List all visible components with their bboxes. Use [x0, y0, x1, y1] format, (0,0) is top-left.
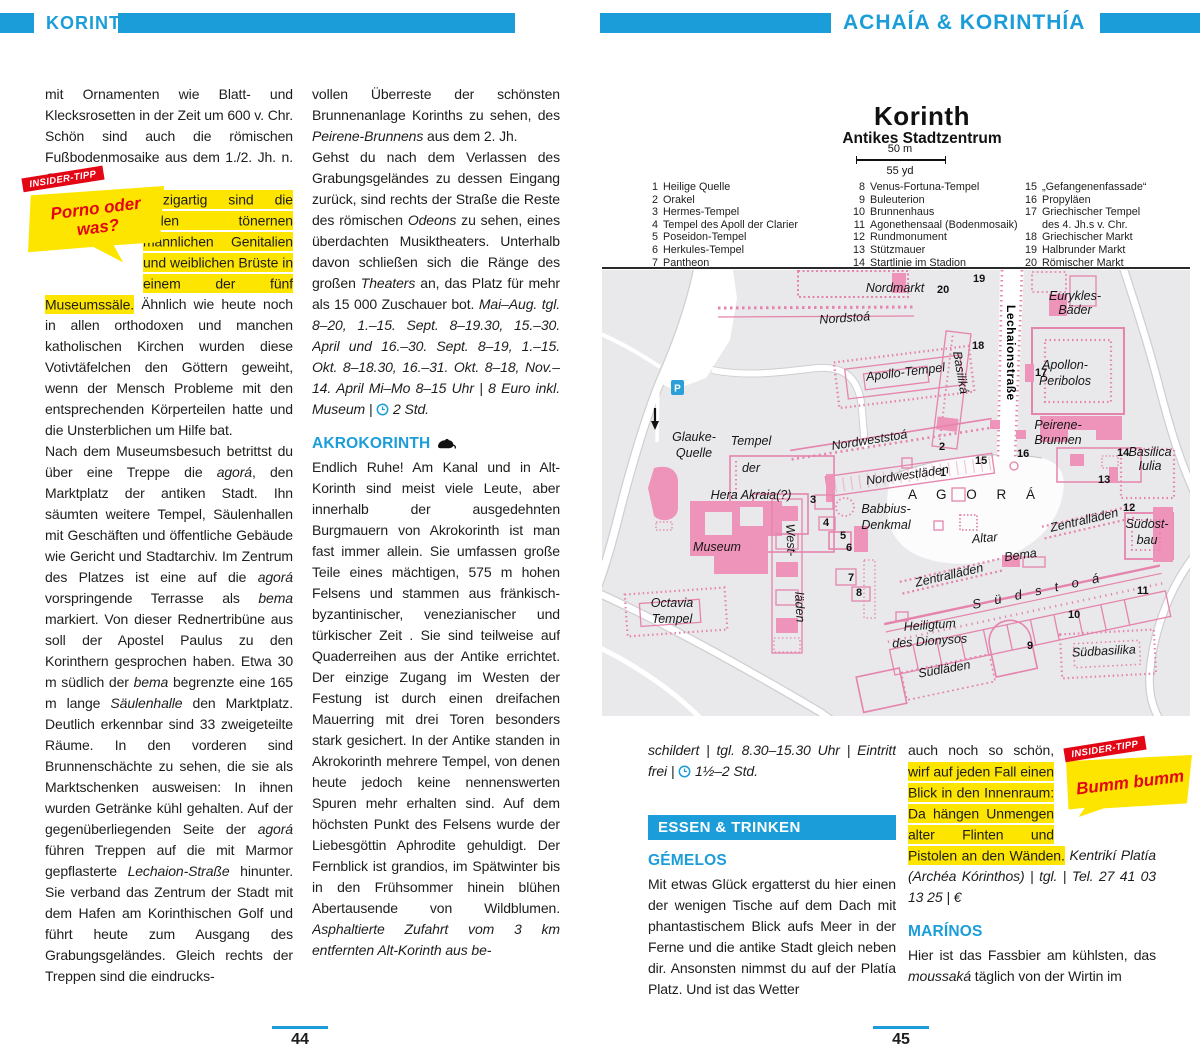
svg-text:8: 8	[856, 587, 862, 599]
paragraph: Endlich Ruhe! Am Kanal und in Alt-Korint…	[312, 457, 560, 961]
heading-label: MARÍNOS	[908, 921, 983, 942]
svg-text:5: 5	[840, 530, 846, 542]
insider-tipp-ribbon: INSIDER-TIPP	[21, 166, 104, 193]
svg-text:Peirene-: Peirene-	[1034, 418, 1081, 432]
map-legend-col2: 8Venus-Fortuna-Tempel 9Buleuterion 10Bru…	[850, 181, 1018, 269]
svg-text:11: 11	[1137, 585, 1149, 597]
insider-tip-right: INSIDER-TIPP Bumm bumm	[1056, 742, 1196, 820]
svg-text:Altar: Altar	[970, 530, 999, 546]
section-heading-marinos: MARÍNOS	[908, 921, 1156, 942]
svg-text:West-: West-	[783, 523, 799, 556]
svg-text:Basilica: Basilica	[1128, 445, 1171, 459]
legend-item: 1Heilige Quelle	[643, 181, 798, 194]
insider-tip-left: INSIDER-TIPP Porno oderwas?	[20, 170, 175, 274]
svg-text:14: 14	[1117, 447, 1130, 459]
map-legend-col3: 15„Gefangenenfassade“ 16Propyläen 17Grie…	[1022, 181, 1146, 269]
map-scale-yards: 55 yd	[856, 165, 944, 177]
svg-text:Octavia: Octavia	[651, 596, 693, 610]
paragraph: Nach dem Museumsbesuch betrittst du über…	[45, 441, 293, 987]
paragraph: Gehst du nach dem Verlassen des Grabungs…	[312, 147, 560, 420]
heading-label: GÉMELOS	[648, 850, 727, 871]
legend-item: 3Hermes-Tempel	[643, 206, 798, 219]
legend-item: 5Poseidon-Tempel	[643, 231, 798, 244]
svg-text:19: 19	[973, 273, 985, 285]
svg-text:P: P	[674, 384, 681, 395]
svg-text:Südost-: Südost-	[1125, 517, 1168, 531]
section-banner: ESSEN & TRINKEN	[648, 815, 896, 840]
svg-text:9: 9	[1027, 640, 1033, 652]
svg-text:3: 3	[810, 494, 816, 506]
svg-text:1: 1	[940, 467, 946, 479]
svg-text:läden: läden	[792, 591, 808, 622]
map-scalebar	[856, 156, 946, 164]
svg-text:16: 16	[1017, 448, 1029, 460]
svg-text:10: 10	[1068, 609, 1080, 621]
svg-text:4: 4	[823, 517, 830, 529]
legend-item: 10Brunnenhaus	[850, 206, 1018, 219]
paragraph: vollen Überreste der schönsten Brunnenan…	[312, 84, 560, 147]
map-panel: Korinth Antikes Stadtzentrum 50 m 55 yd …	[602, 85, 1190, 716]
pagenum-rule-left	[272, 1026, 328, 1029]
svg-text:Hera Akraia(?): Hera Akraia(?)	[711, 488, 792, 502]
svg-text:7: 7	[848, 572, 854, 584]
svg-text:bau: bau	[1137, 533, 1158, 547]
svg-text:Bäder: Bäder	[1058, 303, 1092, 317]
header-bar-left-edge	[0, 13, 34, 33]
svg-text:2: 2	[939, 441, 945, 453]
paragraph: Hier ist das Fassbier am kühlsten, das m…	[908, 945, 1156, 987]
svg-text:15: 15	[975, 455, 987, 467]
svg-text:Iulia: Iulia	[1139, 459, 1162, 473]
header-bar-right	[600, 13, 831, 33]
legend-item: 16Propyläen	[1022, 194, 1146, 207]
svg-text:Denkmal: Denkmal	[861, 518, 912, 532]
page-title-right: ACHAÍA & KORINTHÍA	[843, 11, 1085, 35]
legend-item: 6Herkules-Tempel	[643, 244, 798, 257]
svg-text:Tempel: Tempel	[731, 434, 773, 448]
page-number-right: 45	[873, 1031, 929, 1049]
svg-text:12: 12	[1123, 502, 1135, 514]
legend-item: 13Stützmauer	[850, 244, 1018, 257]
legend-item: 15„Gefangenenfassade“	[1022, 181, 1146, 194]
svg-text:der: der	[742, 461, 761, 475]
page-number-left: 44	[272, 1031, 328, 1049]
speech-bubble: Bumm bumm	[1066, 755, 1192, 817]
svg-text:A G O R Á: A G O R Á	[908, 487, 1043, 502]
svg-text:20: 20	[937, 284, 949, 296]
paragraph: Mit etwas Glück ergatterst du hier einen…	[648, 874, 896, 1000]
legend-item: 12Rundmonument	[850, 231, 1018, 244]
svg-text:Babbius-: Babbius-	[861, 502, 910, 516]
heading-label: AKROKORINTH	[312, 433, 430, 454]
legend-item: 18Griechischer Markt	[1022, 231, 1146, 244]
section-heading-gemelos: GÉMELOS	[648, 850, 896, 871]
svg-text:17: 17	[1035, 367, 1047, 379]
svg-text:Brunnen: Brunnen	[1034, 433, 1081, 447]
legend-item-cont: des 4. Jh.s v. Chr.	[1022, 219, 1146, 232]
svg-text:18: 18	[972, 340, 984, 352]
site-map: Nordmarkt Nordstoá Apollo-Tempel Eurykle…	[602, 270, 1190, 716]
map-legend-col1: 1Heilige Quelle 2Orakel 3Hermes-Tempel 4…	[643, 181, 798, 269]
legend-item: 9Buleuterion	[850, 194, 1018, 207]
paragraph: schildert | tgl. 8.30–15.30 Uhr | Eintri…	[648, 740, 896, 782]
section-heading-akrokorinth: AKROKORINTH	[312, 433, 560, 454]
book-spread: KORINTH ACHAÍA & KORINTHÍA mit Ornamente…	[0, 0, 1200, 1054]
legend-item: 8Venus-Fortuna-Tempel	[850, 181, 1018, 194]
header-bar-left	[118, 13, 515, 33]
p44-column-2: vollen Überreste der schönsten Brunnenan…	[312, 84, 560, 992]
p45-column-1: schildert | tgl. 8.30–15.30 Uhr | Eintri…	[648, 740, 896, 1016]
legend-item: 2Orakel	[643, 194, 798, 207]
svg-text:Museum: Museum	[693, 540, 741, 554]
legend-item: 17Griechischer Tempel	[1022, 206, 1146, 219]
svg-text:Lechaionstraße: Lechaionstraße	[1004, 305, 1018, 401]
map-title: Korinth	[654, 101, 1190, 132]
legend-item: 19Halbrunder Markt	[1022, 244, 1146, 257]
legend-item: 4Tempel des Apoll der Clarier	[643, 219, 798, 232]
clock-icon	[376, 403, 389, 416]
svg-text:6: 6	[846, 542, 852, 554]
highlight-marker-icon	[436, 437, 457, 451]
header-bar-right-edge	[1100, 13, 1200, 33]
pagenum-rule-right	[873, 1026, 929, 1029]
legend-item: 11Agonethensaal (Bodenmosaik)	[850, 219, 1018, 232]
svg-text:Apollon-: Apollon-	[1041, 358, 1088, 372]
clock-icon	[678, 765, 691, 778]
svg-text:Glauke-: Glauke-	[672, 430, 716, 444]
svg-text:13: 13	[1098, 474, 1110, 486]
svg-text:Quelle: Quelle	[676, 446, 712, 460]
map-scale-metric: 50 m	[856, 143, 944, 155]
svg-text:Tempel: Tempel	[652, 612, 694, 626]
parking-icon: P	[671, 380, 684, 395]
svg-text:Eurykles-: Eurykles-	[1049, 289, 1101, 303]
speech-bubble: Porno oderwas?	[28, 186, 164, 264]
map-border-line	[602, 267, 1190, 269]
svg-text:Nordmarkt: Nordmarkt	[866, 281, 925, 295]
